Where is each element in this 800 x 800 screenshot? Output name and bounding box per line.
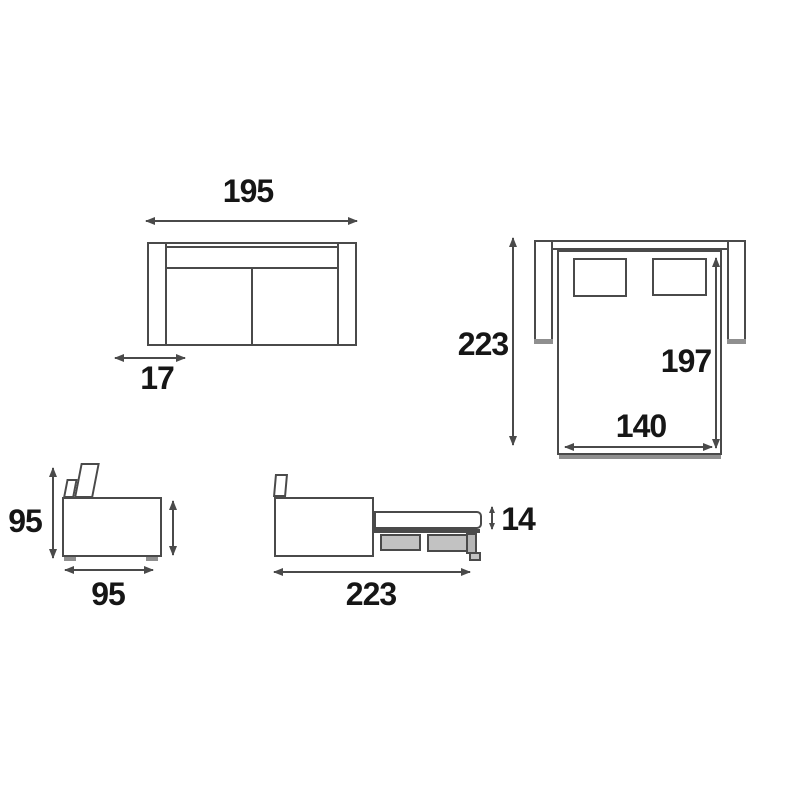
dim-label-front-armrest: 17 — [140, 362, 174, 394]
fold-out-leg — [466, 533, 477, 554]
dim-label-bed-width: 140 — [616, 410, 666, 442]
open-length-arrow — [274, 571, 470, 573]
pillow-right — [652, 258, 707, 296]
front-armrest-arrow — [115, 357, 185, 359]
mattress-shadow — [559, 455, 721, 459]
backrest-side-open — [273, 474, 288, 497]
dim-label-open-length: 223 — [346, 578, 396, 610]
dim-label-bed-length: 197 — [661, 345, 711, 377]
left-armrest-top-view — [534, 240, 553, 341]
sofa-front-right-arm-line — [337, 242, 339, 346]
sofa-front-cushion-divider-line — [251, 268, 253, 346]
sofa-body-side-closed — [62, 497, 162, 557]
right-armrest-shadow — [727, 339, 746, 344]
right-armrest-top-view — [727, 240, 746, 341]
sofa-body-side-open — [274, 497, 374, 557]
open-depth-arrow — [512, 238, 514, 445]
sofa-front-backrest-top-line — [167, 246, 337, 248]
dim-label-mattress-thickness: 14 — [501, 503, 535, 535]
side-height-arrow — [52, 468, 54, 558]
extended-mattress-side — [374, 511, 482, 529]
dim-label-front-width: 195 — [223, 175, 273, 207]
pillow-left — [573, 258, 627, 297]
front-foot-closed — [64, 557, 76, 561]
side-depth-arrow — [65, 569, 153, 571]
seat-height-arrow — [172, 501, 174, 555]
bed-width-arrow — [565, 446, 712, 448]
sofa-front-left-arm-line — [165, 242, 167, 346]
bed-frame-rail — [374, 529, 480, 533]
dim-label-side-height: 95 — [8, 505, 42, 537]
fold-out-foot — [469, 552, 481, 561]
dim-label-side-depth: 95 — [91, 578, 125, 610]
left-armrest-shadow — [534, 339, 553, 344]
mattress-thickness-arrow — [491, 507, 493, 529]
bed-length-arrow — [715, 258, 717, 448]
mechanism-box-2 — [427, 534, 470, 552]
dim-label-open-depth: 223 — [458, 328, 508, 360]
mechanism-box-1 — [380, 534, 421, 551]
sofa-bed-dimension-diagram: 195 17 223 197 140 95 — [0, 0, 800, 800]
rear-foot-closed — [146, 557, 158, 561]
backrest-top-view — [534, 240, 746, 250]
backrest-side-closed — [74, 463, 100, 498]
front-width-arrow — [146, 220, 357, 222]
